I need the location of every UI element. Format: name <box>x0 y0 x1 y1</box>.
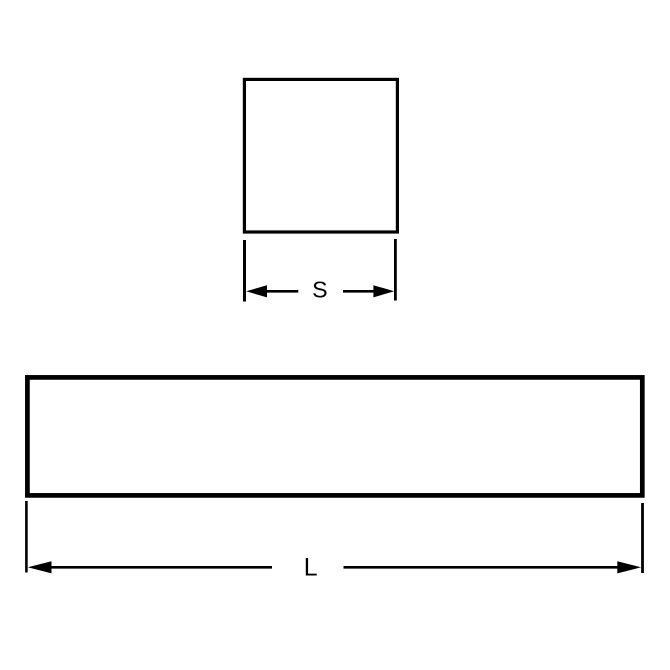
svg-text:S: S <box>312 276 327 302</box>
svg-text:L: L <box>304 554 318 581</box>
